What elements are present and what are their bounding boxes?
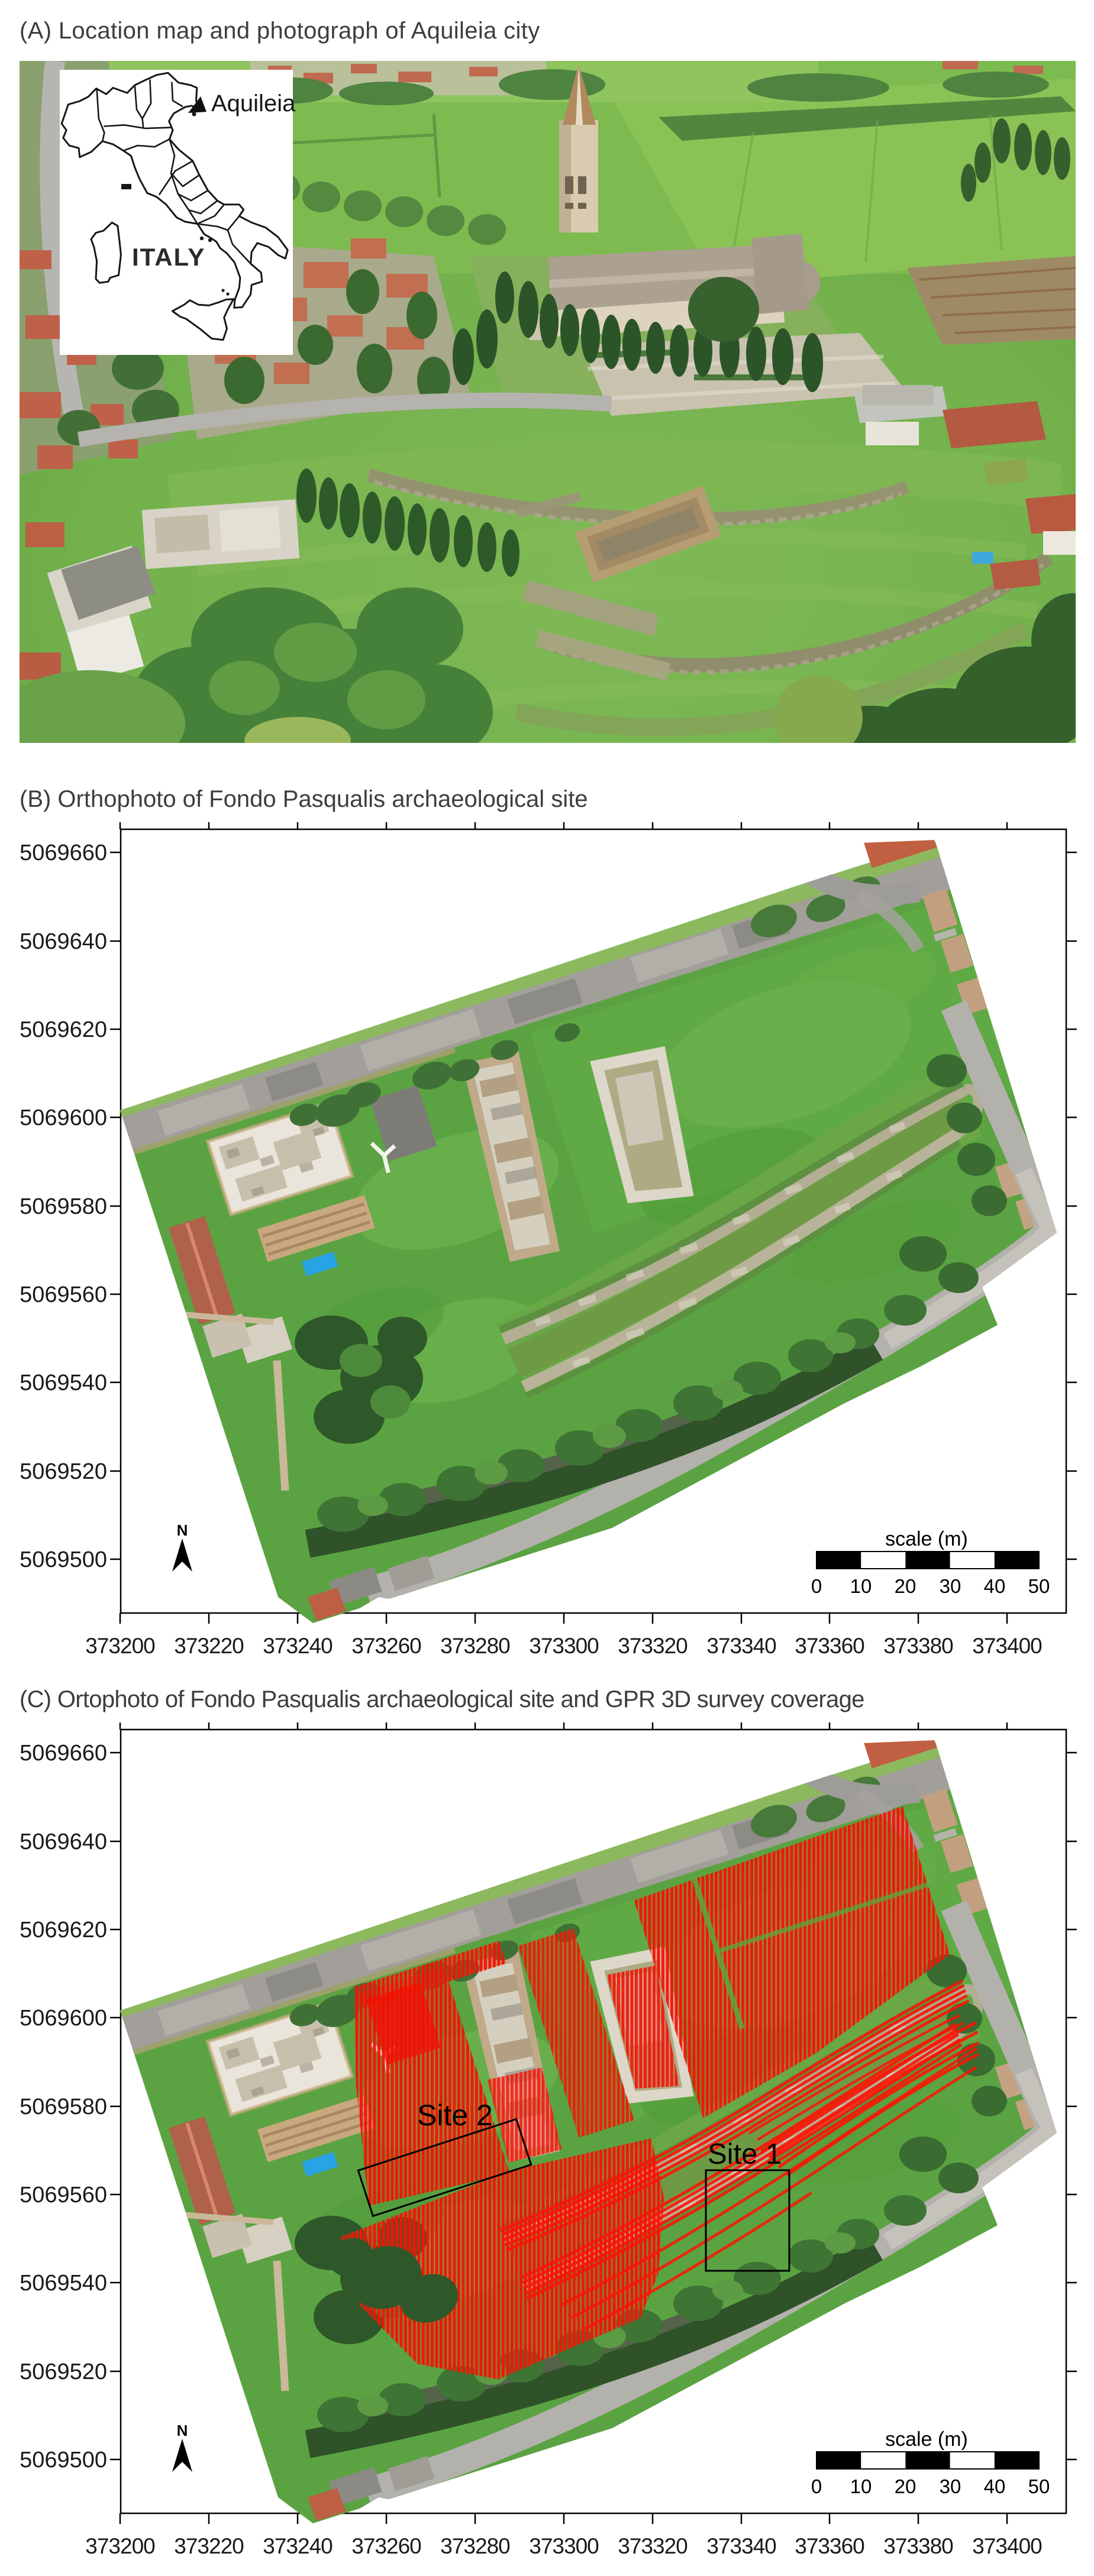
svg-text:5069580: 5069580 [20,1194,107,1219]
svg-text:40: 40 [984,1575,1006,1597]
svg-text:Site 2: Site 2 [417,2099,493,2132]
svg-text:373360: 373360 [795,1634,864,1656]
svg-text:5069620: 5069620 [20,1017,107,1042]
svg-text:373380: 373380 [883,1634,953,1656]
svg-text:5069520: 5069520 [20,1459,107,1484]
svg-text:ITALY: ITALY [132,243,205,271]
svg-text:373340: 373340 [706,1634,776,1656]
svg-text:5069560: 5069560 [20,1282,107,1307]
svg-text:373260: 373260 [351,1634,421,1656]
svg-text:373220: 373220 [174,1634,244,1656]
svg-text:373240: 373240 [263,1634,333,1656]
svg-text:scale (m): scale (m) [885,1528,968,1550]
svg-text:373400: 373400 [972,1634,1042,1656]
svg-text:5069540: 5069540 [20,1371,107,1395]
svg-text:10: 10 [850,1575,872,1597]
svg-text:373300: 373300 [529,1634,599,1656]
svg-text:Site 1: Site 1 [708,2138,782,2170]
svg-text:N: N [177,1521,188,1539]
svg-text:5069640: 5069640 [20,929,107,954]
svg-text:30: 30 [940,1575,961,1597]
svg-text:5069660: 5069660 [20,841,107,865]
svg-text:373320: 373320 [618,1634,688,1656]
svg-text:5069600: 5069600 [20,1106,107,1130]
svg-text:50: 50 [1028,1575,1050,1597]
svg-text:373200: 373200 [85,1634,155,1656]
svg-text:5069500: 5069500 [20,1547,107,1572]
svg-text:Aquileia: Aquileia [211,91,296,117]
svg-text:373280: 373280 [440,1634,510,1656]
svg-text:20: 20 [895,1575,916,1597]
svg-text:0: 0 [811,1575,822,1597]
